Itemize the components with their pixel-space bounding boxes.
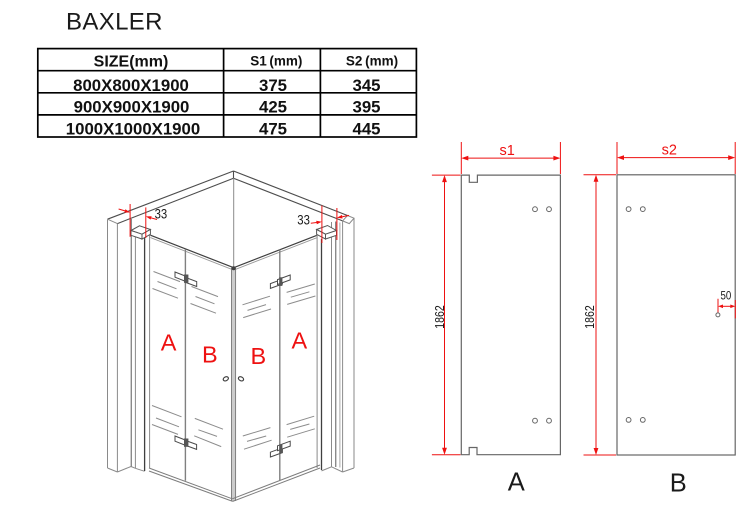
svg-text:475: 475 [259,120,287,139]
svg-text:B: B [670,469,687,497]
svg-text:33: 33 [297,211,310,227]
svg-text:s2: s2 [662,142,677,158]
svg-text:1862: 1862 [583,305,597,328]
svg-text:33: 33 [155,206,168,222]
svg-text:A: A [508,469,525,497]
svg-text:395: 395 [353,98,381,117]
svg-text:345: 345 [353,76,381,95]
svg-text:900X900X1900: 900X900X1900 [74,98,190,117]
svg-text:SIZE(mm): SIZE(mm) [94,53,169,70]
svg-text:1000X1000X1900: 1000X1000X1900 [66,120,200,139]
svg-text:S2 (mm): S2 (mm) [346,54,398,69]
svg-text:BAXLER: BAXLER [66,8,163,35]
svg-text:445: 445 [353,120,381,139]
svg-text:800X800X1900: 800X800X1900 [73,76,189,95]
svg-text:B: B [250,343,266,369]
svg-text:425: 425 [259,98,287,117]
svg-text:A: A [291,328,307,354]
svg-text:1862: 1862 [433,305,447,328]
svg-text:A: A [161,330,177,356]
svg-text:s1: s1 [500,143,515,159]
svg-text:B: B [202,341,218,367]
svg-text:375: 375 [259,76,287,95]
svg-text:50: 50 [721,291,732,303]
svg-text:S1 (mm): S1 (mm) [250,54,302,69]
